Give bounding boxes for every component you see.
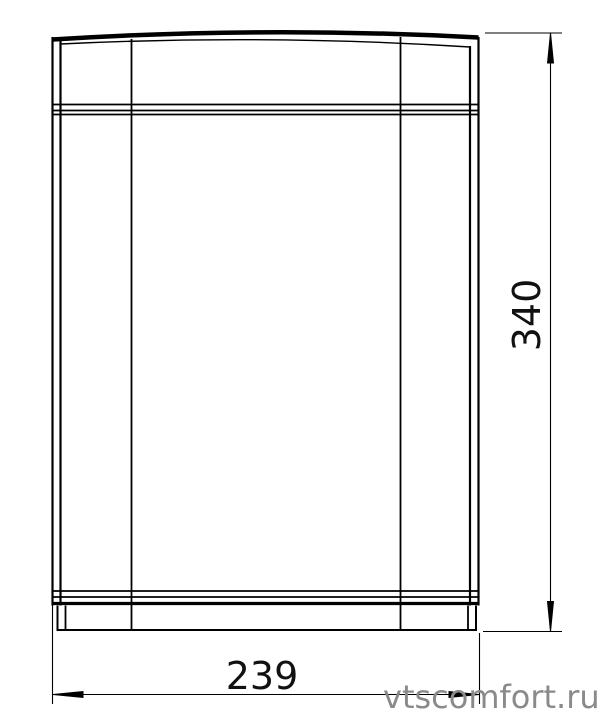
top-dome-arc: [53, 32, 479, 39]
height-dim-arrow-down: [548, 602, 554, 632]
technical-drawing-svg: 340 239 vtscomfort.ru: [0, 0, 607, 719]
width-dimension-label: 239: [226, 654, 299, 698]
height-dim-arrow-up: [548, 33, 554, 63]
plinth-outline: [58, 606, 477, 631]
watermark-text: vtscomfort.ru: [383, 678, 600, 716]
cabinet-body: [53, 32, 479, 630]
drawing-canvas: 340 239 vtscomfort.ru: [0, 0, 607, 719]
top-dome-inner-arc: [61, 40, 471, 47]
height-dimension-label: 340: [505, 279, 549, 352]
width-dim-arrow-left: [53, 692, 83, 698]
